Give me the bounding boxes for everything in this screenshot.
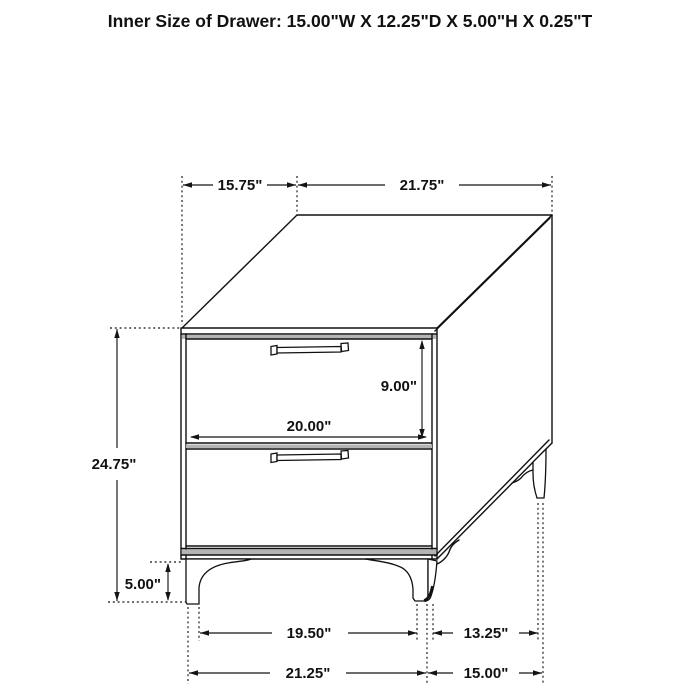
dim-front-leg-inner-span-label: 19.50" [287,625,332,642]
top-drawer-handle-icon [271,343,349,355]
dim-overall-height: 24.75" [92,329,137,601]
dimension-diagram: Inner Size of Drawer: 15.00"W X 12.25"D … [0,0,700,700]
dim-drawer-height-label: 9.00" [381,378,417,395]
front-face [181,328,437,559]
dim-leg-height-label: 5.00" [125,576,161,593]
dim-front-leg-outer-span-label: 21.25" [286,665,331,682]
back-right-leg [512,449,546,498]
dim-overall-height-label: 24.75" [92,456,137,473]
drawing-title: Inner Size of Drawer: 15.00"W X 12.25"D … [108,11,593,31]
furniture-drawing: Inner Size of Drawer: 15.00"W X 12.25"D … [0,0,700,700]
dim-top-width-label: 15.75" [218,177,263,194]
dim-top-width: 15.75" [183,177,296,194]
dim-drawer-width-label: 20.00" [287,418,332,435]
dim-top-depth: 21.75" [298,177,551,194]
right-side-panel [435,215,552,559]
top-face [182,215,552,331]
dim-side-leg-inner-span: 13.25" [433,625,538,642]
dim-side-leg-outer-span: 15.00" [428,665,542,682]
dim-side-leg-outer-span-label: 15.00" [464,665,509,682]
dim-side-leg-inner-span-label: 13.25" [464,625,509,642]
bottom-drawer-handle-icon [271,451,349,463]
front-left-leg [186,559,251,604]
dim-drawer-width: 20.00" [190,418,427,440]
dim-drawer-height: 9.00" [381,340,425,438]
dim-top-depth-label: 21.75" [400,177,445,194]
dim-front-leg-outer-span: 21.25" [189,665,426,682]
dim-front-leg-inner-span: 19.50" [200,625,417,642]
dim-leg-height: 5.00" [125,563,171,601]
